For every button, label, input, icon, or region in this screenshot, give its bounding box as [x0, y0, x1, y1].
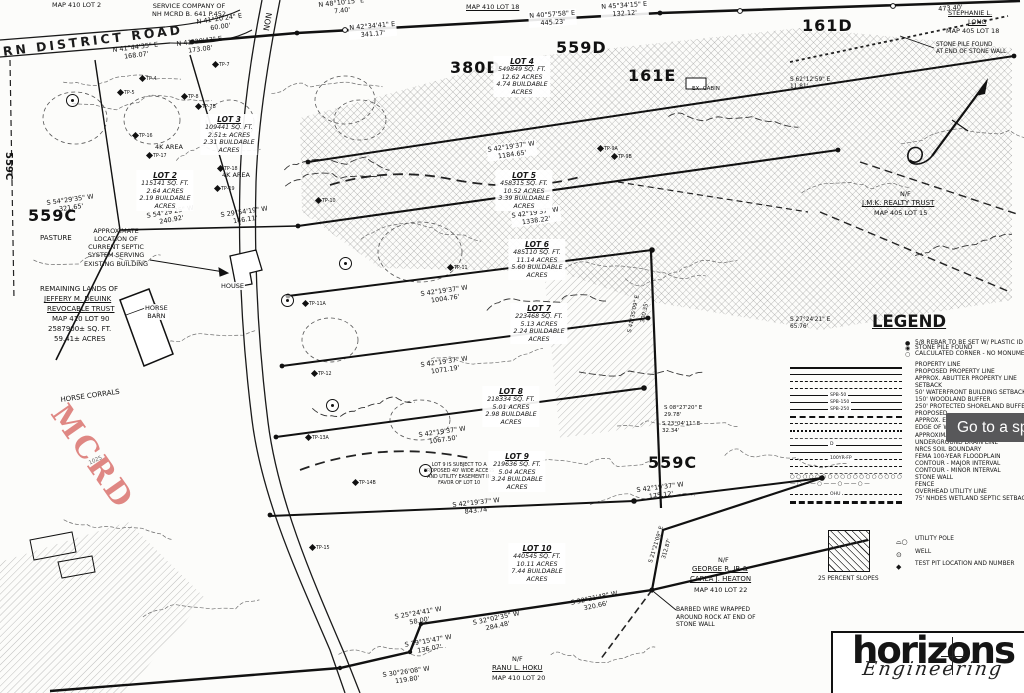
ohu-line-icon: OHU — [790, 494, 902, 495]
legend-label: APPROX. ABUTTER PROPERTY LINE — [915, 376, 1017, 382]
legend-label: FENCE — [915, 482, 934, 488]
legend-label: WELL — [915, 549, 931, 555]
proposed-property-line-icon — [790, 374, 902, 375]
legend-label: 250' PROTECTED SHORELAND BUFFER — [915, 404, 1024, 410]
fence-line-icon: —○——○——○——○— — [790, 481, 902, 489]
legend-label: CONTOUR - MINOR INTERVAL — [915, 468, 1001, 474]
legend-label: CONTOUR - MAJOR INTERVAL — [915, 461, 1000, 467]
legend-label: NRCS SOIL BOUNDARY — [915, 447, 981, 453]
legend-line-tag: OHU — [828, 492, 842, 497]
logo-tagline: Engineering — [831, 658, 1024, 680]
property-line-icon — [790, 367, 902, 369]
legend-label: APPROX. E — [915, 418, 946, 424]
abutter-line-icon — [790, 381, 902, 382]
legend-label: EDGE OF W — [915, 425, 949, 431]
edge-w-line-icon — [790, 430, 902, 432]
legend-line-tag: 100YR-FP — [828, 456, 854, 461]
legend-label: TEST PIT LOCATION AND NUMBER — [915, 561, 1014, 567]
legend-label: CALCULATED CORNER - NO MONUMENT — [915, 351, 1024, 357]
legend-label: PROPOSED PROPERTY LINE — [915, 369, 995, 375]
legend-label: SETBACK — [915, 383, 942, 389]
calculated-corner-icon: ○ — [905, 351, 910, 358]
well-icon: ⊙ — [896, 551, 902, 559]
drain-line-icon: D — [790, 445, 902, 446]
approx-e-line-icon — [790, 423, 902, 424]
legend-label: FEMA 100-YEAR FLOODPLAIN — [915, 454, 1001, 460]
slope-hatch-icon — [828, 530, 870, 572]
legend-label: UTILITY POLE — [915, 536, 954, 542]
floodplain-line-icon: 100YR-FP — [790, 459, 902, 460]
logo-crosshair-icon — [941, 656, 965, 657]
legend-title: LEGEND — [872, 312, 946, 331]
legend-line-tag: SPB-150 — [828, 400, 851, 405]
proposed2-line-icon — [790, 416, 902, 418]
legend-label: 150' WOODLAND BUFFER — [915, 397, 991, 403]
legend-label: PROPOSED — [915, 411, 947, 417]
legend-line-tag: D — [828, 442, 836, 447]
wetland-line-icon — [790, 501, 902, 504]
legend-label: STONE WALL — [915, 475, 953, 481]
legend-label: 75' NHDES WETLAND SEPTIC SETBACK — [915, 496, 1024, 502]
spb150-line-icon: SPB-150 — [790, 402, 902, 403]
tooltip: Go to a spe — [946, 413, 1024, 442]
contour-major-line-icon — [790, 466, 902, 467]
test-pit-icon: ◆ — [896, 563, 901, 571]
logo-horizons: horizons Engineering — [831, 631, 1024, 693]
legend-panel: LEGEND ●5/8 REBAR TO BE SET W/ PLASTIC I… — [786, 306, 1024, 606]
setback-line-icon — [790, 388, 902, 389]
survey-map-canvas[interactable]: MCRD MAP 410 LOT 2SERVICE COMPANY OF NH … — [0, 0, 1024, 693]
spb50-line-icon: SPB-50 — [790, 395, 902, 396]
legend-label: APPROXIMA — [915, 433, 949, 439]
legend-label: OVERHEAD UTILITY LINE — [915, 489, 987, 495]
legend-label: 50' WATERFRONT BUILDING SETBACK — [915, 390, 1024, 396]
legend-label: PROPERTY LINE — [915, 362, 960, 368]
spb250-line-icon: SPB-250 — [790, 409, 902, 410]
legend-line-tag: SPB-250 — [828, 407, 851, 412]
nrcs-line-icon — [790, 452, 902, 453]
legend-label: 25 PERCENT SLOPES — [818, 576, 879, 582]
utility-pole-icon: ⌓○ — [896, 538, 908, 547]
approxima-line-icon — [790, 438, 902, 439]
legend-line-tag: SPB-50 — [828, 393, 848, 398]
